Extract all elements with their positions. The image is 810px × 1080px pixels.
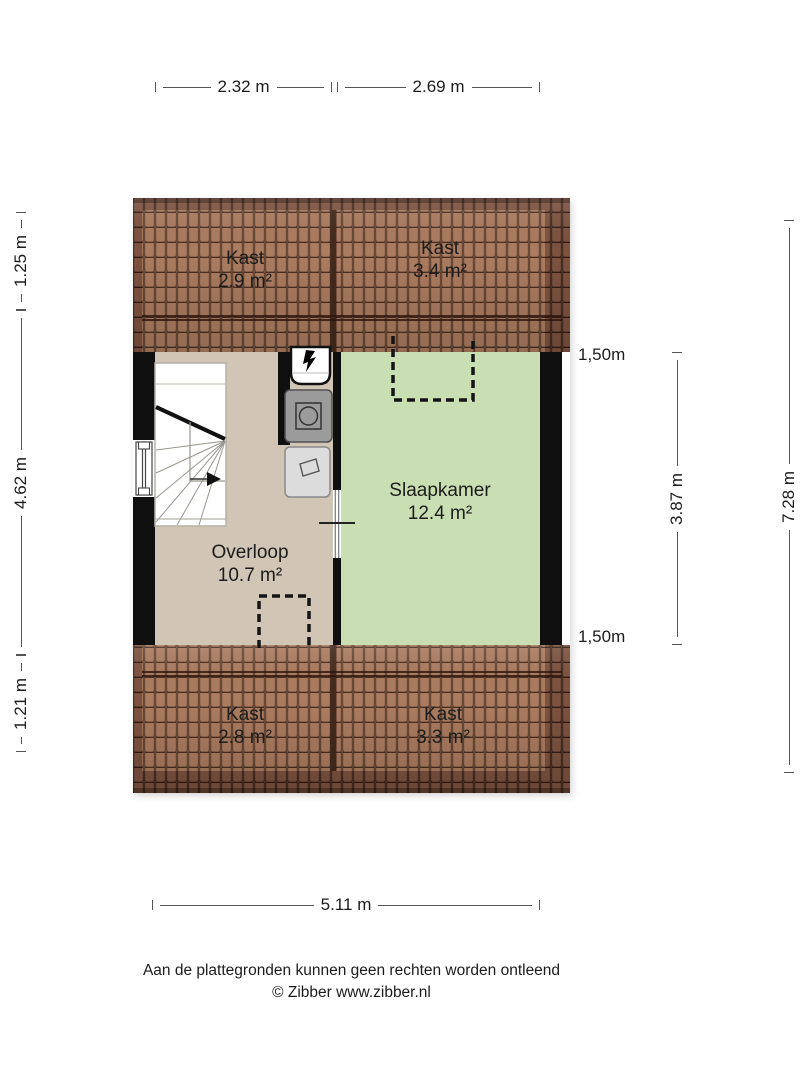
dimension-label: 2.69 m bbox=[413, 77, 465, 97]
headroom-marker-top: 1,50m bbox=[578, 345, 625, 365]
dimension-bottom: 5.11 m bbox=[152, 897, 540, 913]
credit-text: © Zibber www.zibber.nl bbox=[133, 982, 570, 1004]
dimension-left-middle: 4.62 m bbox=[12, 310, 30, 655]
floorplan-drawing: Kast 2.9 m² Kast 3.4 m² Slaapkamer 12.4 … bbox=[133, 198, 570, 793]
room-name: Kast bbox=[416, 703, 470, 726]
room-area: 12.4 m² bbox=[389, 502, 490, 525]
dimension-right-inner: 3.87 m bbox=[668, 352, 686, 645]
dimension-label: 5.11 m bbox=[321, 895, 372, 915]
right-wall bbox=[540, 352, 562, 645]
left-wall bbox=[133, 352, 155, 645]
dimension-label: 3.87 m bbox=[667, 473, 687, 525]
floorplan-page: 2.32 m 2.69 m 1.25 m 4.62 m 1.21 m 1,50m… bbox=[0, 0, 810, 1080]
dimension-label: 1.21 m bbox=[11, 678, 31, 730]
room-area: 10.7 m² bbox=[211, 564, 288, 587]
disclaimer-text: Aan de plattegronden kunnen geen rechten… bbox=[133, 960, 570, 982]
room-label-overloop: Overloop 10.7 m² bbox=[211, 541, 288, 587]
mechanical-ventilation-icon bbox=[291, 347, 330, 384]
room-label-kast-top-left: Kast 2.9 m² bbox=[218, 247, 272, 293]
room-label-kast-bottom-left: Kast 2.8 m² bbox=[218, 703, 272, 749]
dimension-left-bottom: 1.21 m bbox=[12, 655, 30, 752]
room-name: Overloop bbox=[211, 541, 288, 564]
room-area: 2.9 m² bbox=[218, 270, 272, 293]
room-area: 2.8 m² bbox=[218, 726, 272, 749]
staircase-icon bbox=[155, 363, 226, 526]
roof-top bbox=[133, 198, 570, 352]
headroom-line-top bbox=[142, 315, 562, 317]
window-icon bbox=[133, 440, 155, 497]
roof-bottom bbox=[133, 645, 570, 793]
room-label-slaapkamer: Slaapkamer 12.4 m² bbox=[389, 479, 490, 525]
room-name: Kast bbox=[218, 247, 272, 270]
footer: Aan de plattegronden kunnen geen rechten… bbox=[133, 960, 570, 1005]
washing-machine-icon bbox=[285, 390, 332, 442]
dimension-right-outer: 7.28 m bbox=[780, 220, 798, 773]
room-area: 3.3 m² bbox=[416, 726, 470, 749]
dimension-top-left: 2.32 m bbox=[155, 79, 332, 95]
dimension-label: 4.62 m bbox=[11, 457, 31, 509]
dimension-label: 2.32 m bbox=[218, 77, 270, 97]
laundry-basket-icon bbox=[285, 447, 330, 497]
headroom-line-bottom bbox=[142, 671, 562, 673]
floorplan-svg bbox=[133, 198, 570, 793]
room-name: Slaapkamer bbox=[389, 479, 490, 502]
room-area: 3.4 m² bbox=[413, 260, 467, 283]
room-label-kast-bottom-right: Kast 3.3 m² bbox=[416, 703, 470, 749]
dimension-top-right: 2.69 m bbox=[337, 79, 540, 95]
dimension-label: 1.25 m bbox=[11, 235, 31, 287]
headroom-marker-bottom: 1,50m bbox=[578, 627, 625, 647]
room-label-kast-top-right: Kast 3.4 m² bbox=[413, 237, 467, 283]
room-name: Kast bbox=[413, 237, 467, 260]
dimension-left-top: 1.25 m bbox=[12, 212, 30, 310]
room-name: Kast bbox=[218, 703, 272, 726]
dimension-label: 7.28 m bbox=[779, 471, 799, 523]
